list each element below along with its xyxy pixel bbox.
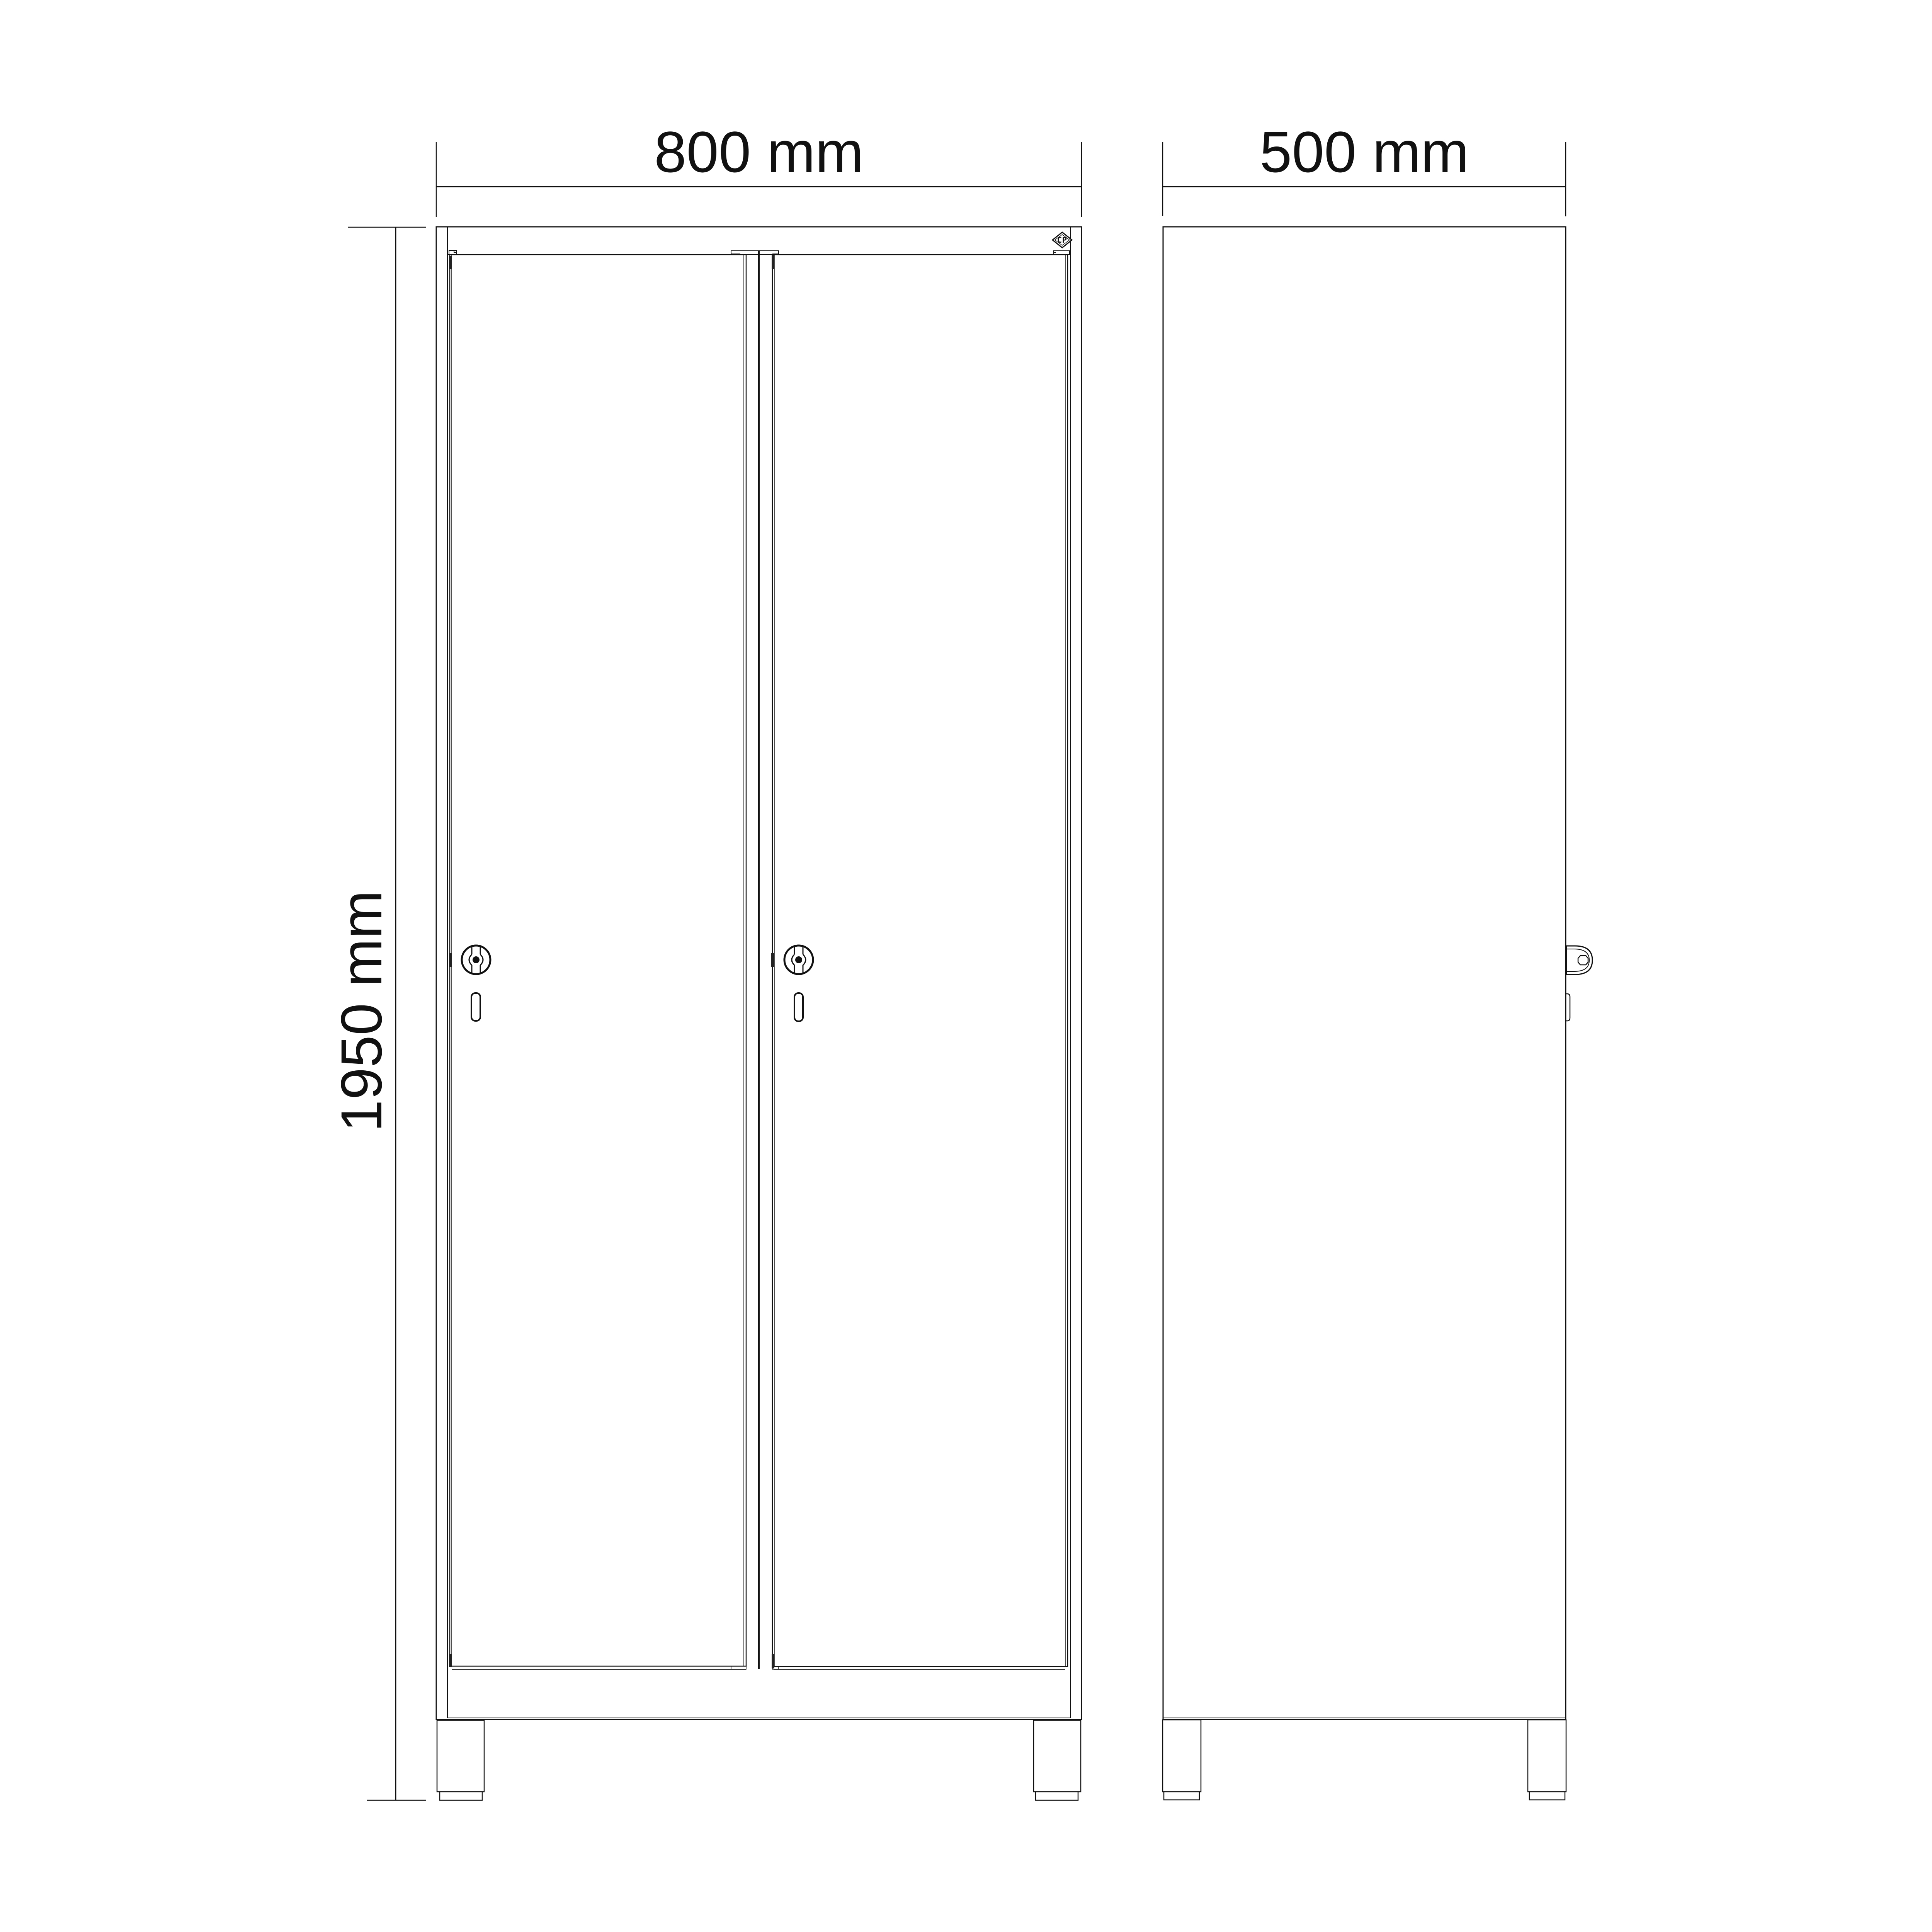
key-slot-icon [471,993,480,1021]
knuckle-right-mid [771,953,774,967]
knuckle-left-top [449,256,452,269]
foot-base [440,1792,482,1800]
foot [1034,1720,1081,1792]
foot-base [1529,1792,1565,1800]
side-view [1163,227,1592,1800]
side-lock-profile [1565,946,1592,1021]
foot [1528,1720,1566,1792]
front-feet [437,1720,1081,1800]
lock-mount-edge [1565,946,1567,975]
key-slot-side-profile [1566,994,1570,1021]
knuckle-right-bottom [772,1654,774,1668]
front-view [436,227,1082,1800]
lock-center-dot [795,956,802,963]
knuckle-right-top [772,255,774,269]
hinge-bracket-right [1054,251,1070,254]
side-body-outline [1163,227,1566,1719]
width-dimension-label: 800 mm [654,119,864,184]
cam-lock-icon [784,946,813,974]
center-post [758,251,760,1669]
foot [437,1720,484,1792]
logo-letters: CP [1057,235,1067,245]
knuckle-left-mid [449,953,452,967]
lock-center-dot [473,956,480,963]
drawing-canvas: 800 mm 500 mm 1950 mm [0,0,1932,1932]
cam-lock-icon [462,946,490,974]
foot-base [1036,1792,1078,1800]
foot [1163,1720,1201,1792]
depth-dimension-label: 500 mm [1260,119,1469,184]
side-feet [1163,1720,1566,1800]
foot-base [1164,1792,1199,1800]
key-slot-icon [794,993,803,1021]
locker-technical-drawing: 800 mm 500 mm 1950 mm [0,0,1932,1932]
height-dimension-label: 1950 mm [329,890,394,1132]
knuckle-left-bottom [449,1654,452,1667]
